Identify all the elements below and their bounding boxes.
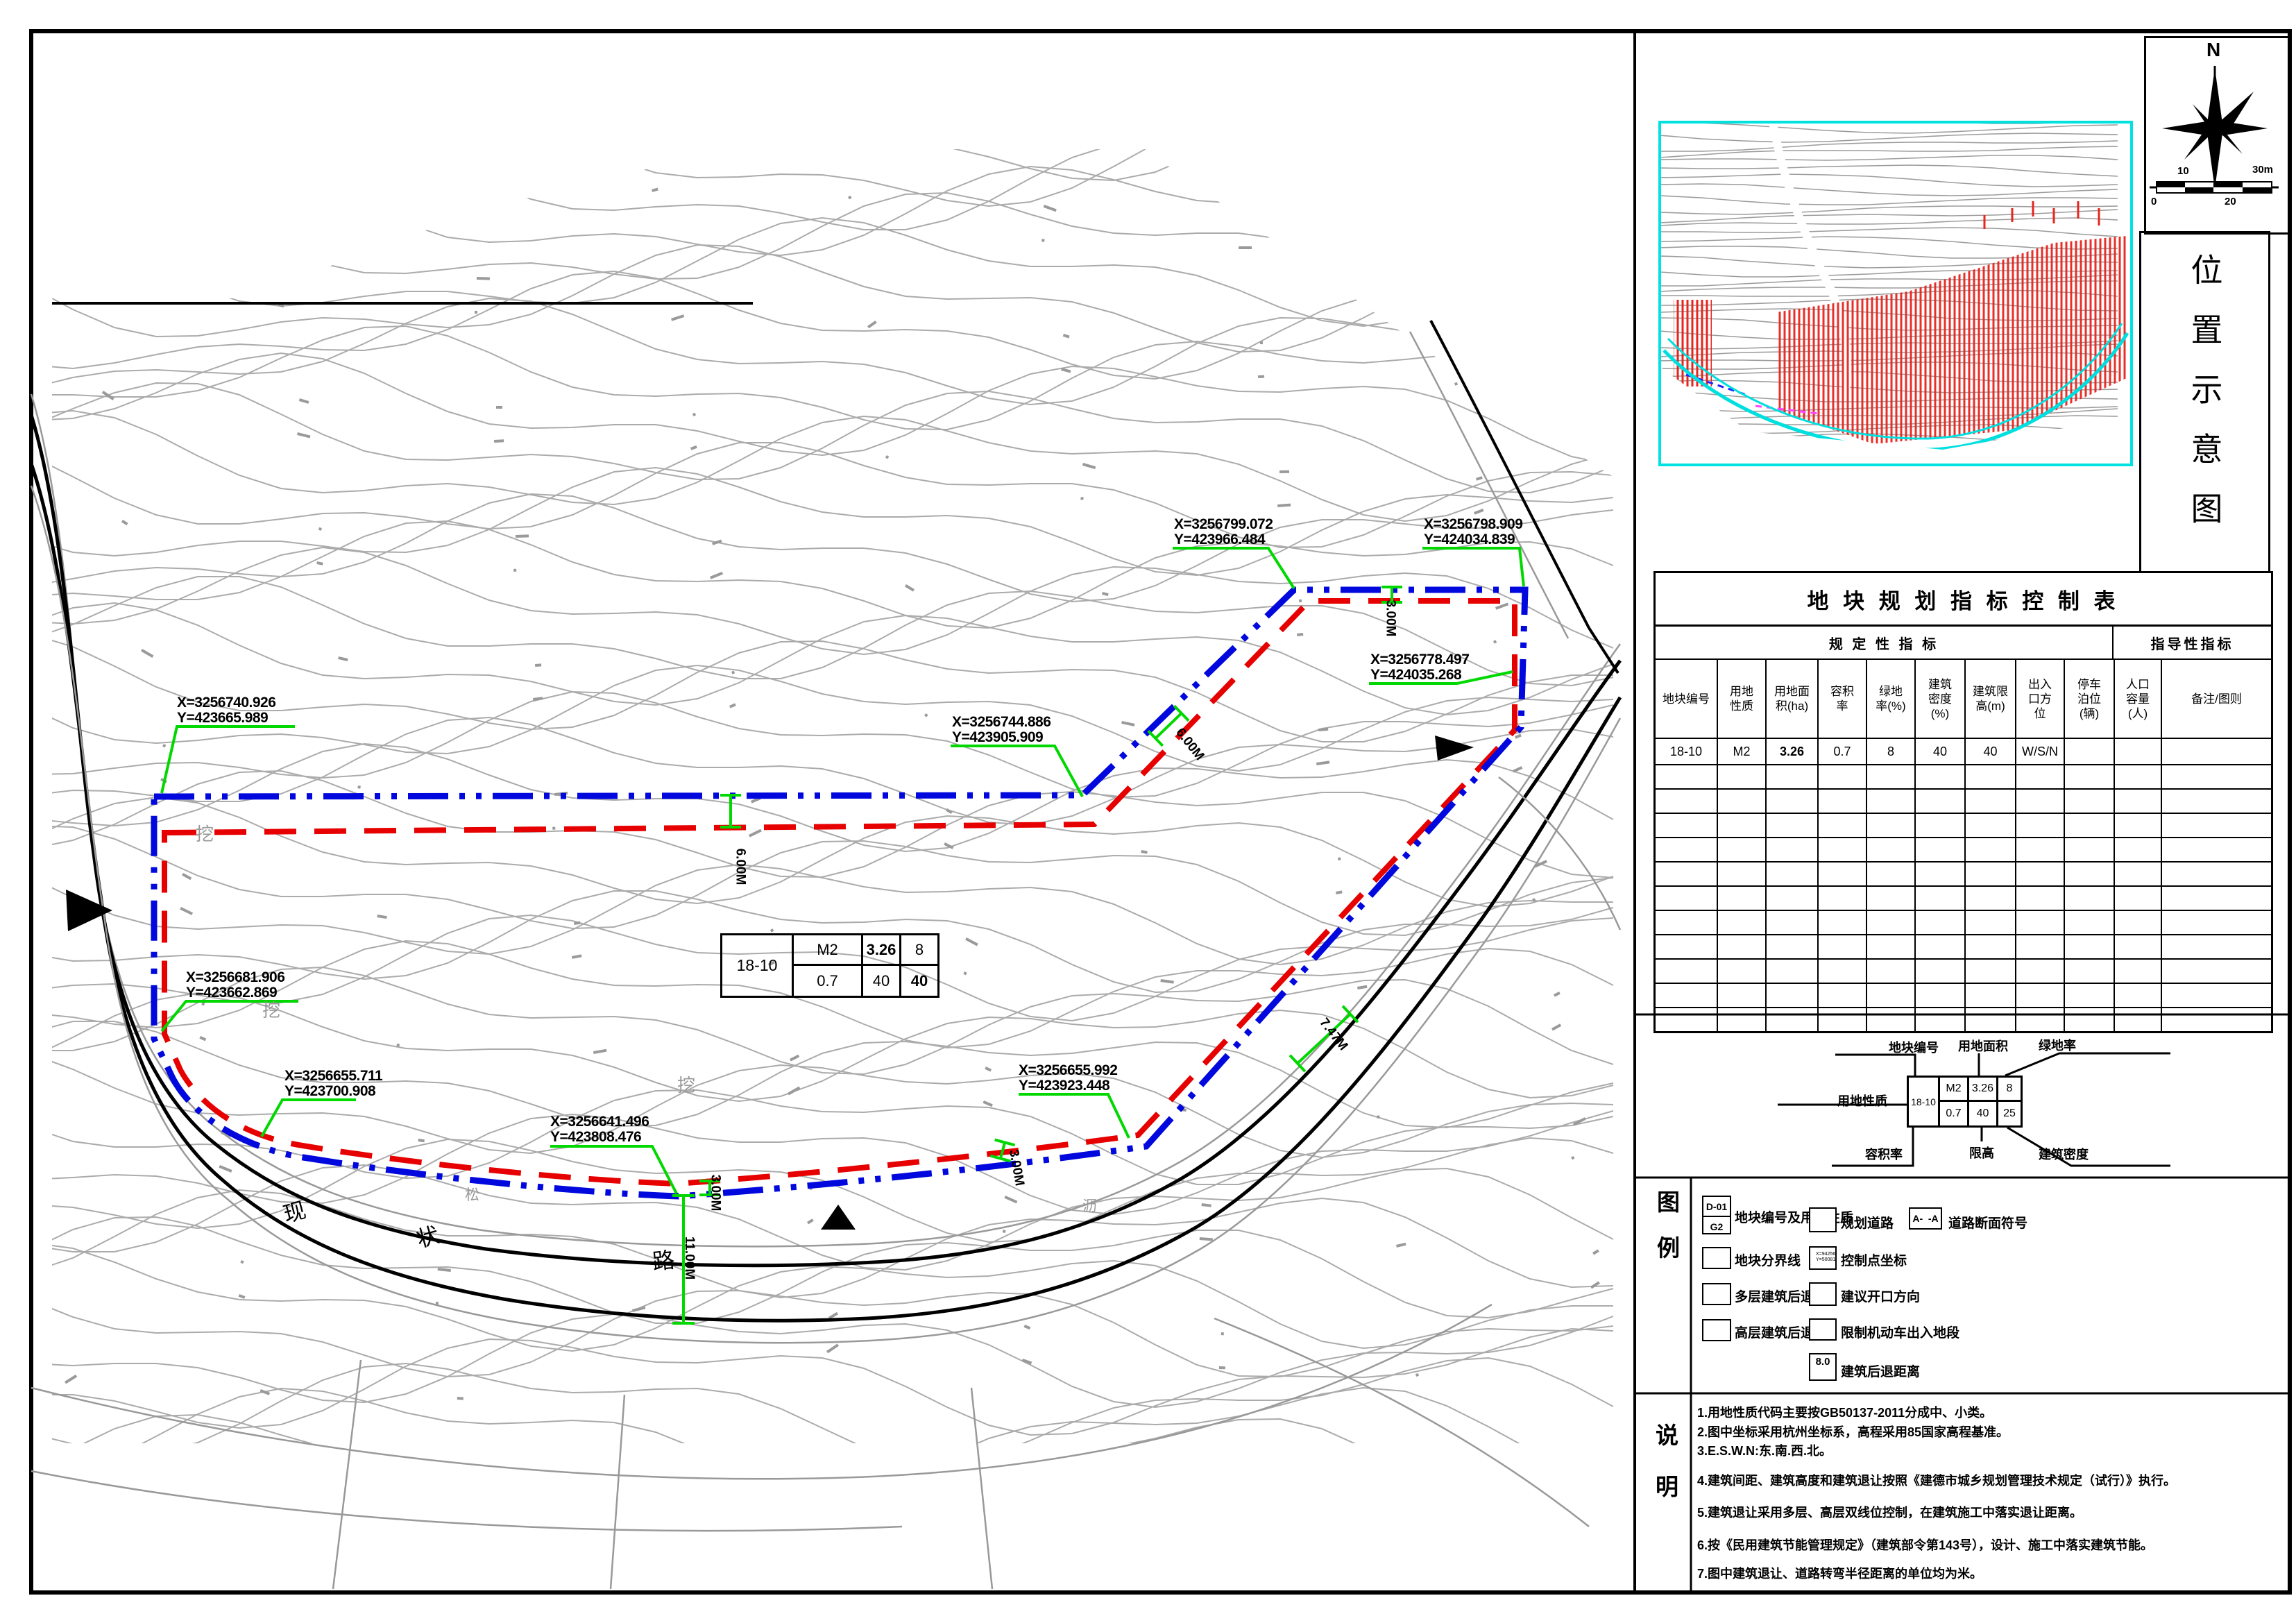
location-title-box: 位置示意图 <box>2139 231 2270 573</box>
legend-section-label: 图 <box>1657 1184 1680 1217</box>
table-row <box>1656 863 2271 887</box>
scale-tick: 30m <box>2252 164 2273 176</box>
group-guiding: 指导性指标 <box>2114 627 2271 658</box>
legend-use-code: G2 <box>1703 1217 1730 1236</box>
ground-mark: 沥 <box>1082 1195 1097 1216</box>
diagram-label-area: 用地面积 <box>1958 1037 2008 1055</box>
legend-item-label: 道路断面符号 <box>1948 1213 2027 1232</box>
table-row <box>1656 1008 2271 1031</box>
legend-item-label: 高层建筑后退 <box>1735 1323 1814 1341</box>
col-header: 地块编号 <box>1656 660 1718 738</box>
coord-label: X=3256641.496Y=423808.476 <box>550 1114 649 1145</box>
dimension-text: 11.00M <box>681 1237 697 1280</box>
cell-far: 0.7 <box>1819 739 1867 764</box>
legend-item-label: 控制点坐标 <box>1841 1250 1907 1269</box>
col-header: 建筑密度(%) <box>1916 660 1966 738</box>
table-row <box>1656 887 2271 911</box>
legend-boundary-symbol <box>1702 1247 1731 1269</box>
col-header: 容积率 <box>1819 660 1867 738</box>
ground-mark: 挖 <box>262 996 280 1022</box>
plot-area: 3.26 <box>863 935 901 966</box>
legend-multi-setback-symbol <box>1702 1283 1731 1305</box>
legend-item-label: 规划道路 <box>1841 1213 1894 1232</box>
contour-lines <box>31 49 1613 1519</box>
col-header: 用地面积(ha) <box>1767 660 1819 738</box>
cell-entrance: W/S/N <box>2016 739 2065 764</box>
cell-notes <box>2162 739 2271 764</box>
ground-mark: 挖 <box>196 820 214 846</box>
table-row <box>1656 790 2271 814</box>
scale-tick: 0 <box>2151 196 2157 207</box>
table-row: 18-10 M2 3.26 0.7 8 40 40 W/S/N <box>1656 739 2271 765</box>
col-header: 绿地率(%) <box>1867 660 1916 738</box>
legend-plot-id-symbol: D-01 G2 <box>1702 1196 1731 1234</box>
table-row <box>1656 984 2271 1008</box>
cell-use: M2 <box>1718 739 1767 764</box>
diag-green: 8 <box>1998 1078 2021 1102</box>
legend-item-label: 地块分界线 <box>1735 1250 1801 1269</box>
coord-label: X=3256744.886Y=423905.909 <box>952 715 1051 745</box>
scale-tick: 10 <box>2177 165 2189 177</box>
planned-road-line <box>154 590 1525 1196</box>
index-table: 地 块 规 划 指 标 控 制 表 规 定 性 指 标 指导性指标 地块编号 用… <box>1653 571 2273 1033</box>
diagram-label-green: 绿地率 <box>2039 1036 2076 1054</box>
location-title: 位置示意图 <box>2182 253 2228 552</box>
col-header: 备注/图则 <box>2162 660 2271 738</box>
note-line: 6.按《民用建筑节能管理规定》（建筑部令第143号），设计、施工中落实建筑节能。 <box>1697 1536 2153 1554</box>
coord-label: X=3256655.711Y=423700.908 <box>284 1069 382 1099</box>
diagram-label-density: 建筑密度 <box>2039 1145 2089 1163</box>
scale-tick: 20 <box>2225 196 2236 207</box>
index-table-title: 地 块 规 划 指 标 控 制 表 <box>1656 573 2271 627</box>
diagram-label-height: 限高 <box>1969 1144 1994 1162</box>
table-row <box>1656 960 2271 984</box>
diag-use: M2 <box>1940 1078 1969 1102</box>
cell-green: 8 <box>1867 739 1916 764</box>
legend-item-label: 多层建筑后退 <box>1735 1286 1814 1305</box>
plot-far: 0.7 <box>794 966 863 996</box>
notes-section-label: 说 <box>1656 1417 1678 1450</box>
diagram-label-far: 容积率 <box>1865 1145 1903 1163</box>
note-line: 7.图中建筑退让、道路转弯半径距离的单位均为米。 <box>1697 1564 1982 1582</box>
table-row <box>1656 838 2271 863</box>
note-line: 3.E.S.W.N:东.南.西.北。 <box>1697 1441 1832 1459</box>
empty-table-rows <box>1656 765 2271 1031</box>
legend-item-label: 建筑后退距离 <box>1841 1361 1920 1380</box>
note-line: 2.图中坐标采用杭州坐标系，高程采用85国家高程基准。 <box>1697 1422 2009 1441</box>
dimension-text: 3.00M <box>707 1175 722 1212</box>
legend-opening-symbol <box>1809 1282 1837 1306</box>
note-line: 4.建筑间距、建筑高度和建筑退让按照《建德市城乡规划管理技术规定（试行）》执行。 <box>1697 1471 2176 1489</box>
col-header: 人口容量(人) <box>2115 660 2162 738</box>
compass-box <box>2144 36 2290 235</box>
col-header: 停车泊位(辆) <box>2065 660 2115 738</box>
coord-label: X=3256798.909Y=424034.839 <box>1424 517 1522 547</box>
location-inset-map <box>1660 112 2127 454</box>
dimension-text: 3.00M <box>1382 600 1397 637</box>
legend-setback-dist-symbol: 8.0 <box>1809 1353 1837 1381</box>
note-line: 5.建筑退让采用多层、高层双线位控制，在建筑施工中落实退让距离。 <box>1697 1503 2082 1521</box>
diagram-label-use: 用地性质 <box>1837 1091 1887 1110</box>
diag-id: 18-10 <box>1909 1078 1940 1125</box>
indicator-diagram-table: 18-10 M2 3.26 8 0.7 40 25 <box>1907 1076 2023 1128</box>
diag-density: 25 <box>1998 1102 2021 1125</box>
notes-section-label: 明 <box>1656 1468 1678 1502</box>
legend-section-symbol: A- -A <box>1909 1207 1942 1230</box>
coord-label: X=3256778.497Y=424035.268 <box>1370 652 1469 683</box>
plot-indicator-tag: 18-10 M2 3.26 8 0.7 40 40 <box>720 933 939 998</box>
diag-area: 3.26 <box>1969 1078 1998 1102</box>
plot-green: 8 <box>901 935 937 966</box>
cell-plot-no: 18-10 <box>1656 739 1718 764</box>
coord-label: X=3256655.992Y=423923.448 <box>1019 1063 1117 1094</box>
legend-high-setback-symbol <box>1702 1319 1731 1341</box>
table-row <box>1656 765 2271 790</box>
cell-density: 40 <box>1916 739 1966 764</box>
diag-far: 0.7 <box>1940 1102 1969 1125</box>
cell-population <box>2115 739 2162 764</box>
table-row <box>1656 911 2271 935</box>
legend-restricted-symbol <box>1809 1318 1837 1341</box>
legend-section-label: 例 <box>1657 1230 1680 1263</box>
diag-height: 40 <box>1969 1102 1998 1125</box>
plot-height: 40 <box>901 966 937 996</box>
cell-height: 40 <box>1966 739 2016 764</box>
legend-control-x: X=94256.336 <box>1816 1252 1835 1257</box>
plot-use: M2 <box>794 935 863 966</box>
coord-label: X=3256799.072Y=423966.484 <box>1174 517 1273 547</box>
plot-density: 40 <box>863 966 901 996</box>
plan-drawing-sheet: X=3256740.926Y=423665.989 X=3256681.906Y… <box>0 0 2296 1623</box>
compass-n-label: N <box>2206 39 2220 61</box>
legend-item-label: 建议开口方向 <box>1841 1286 1920 1305</box>
ground-mark: 松 <box>465 1184 479 1205</box>
cell-parking <box>2065 739 2115 764</box>
note-line: 1.用地性质代码主要按GB50137-2011分成中、小类。 <box>1697 1403 1992 1421</box>
ground-mark: 挖 <box>677 1071 695 1097</box>
legend-plot-code: D-01 <box>1703 1197 1730 1217</box>
coord-label: X=3256740.926Y=423665.989 <box>177 695 275 726</box>
col-header: 建筑限高(m) <box>1966 660 2016 738</box>
legend-control-point-symbol: X=94256.336 Y=500818.789 <box>1809 1246 1837 1270</box>
table-row <box>1656 814 2271 838</box>
group-prescriptive: 规 定 性 指 标 <box>1656 627 2114 658</box>
col-header: 出入口方位 <box>2016 660 2065 738</box>
col-header: 用地性质 <box>1718 660 1767 738</box>
legend-item-label: 限制机动车出入地段 <box>1841 1323 1959 1341</box>
table-row <box>1656 935 2271 960</box>
road-name-char: 路 <box>651 1242 677 1276</box>
diagram-label-plot-no: 地块编号 <box>1889 1038 1939 1056</box>
plot-id: 18-10 <box>722 935 794 996</box>
dimension-text: 6.00M <box>732 849 747 885</box>
cell-area: 3.26 <box>1767 739 1819 764</box>
legend-control-y: Y=500818.789 <box>1816 1257 1835 1263</box>
legend-planned-road-symbol <box>1809 1207 1837 1232</box>
